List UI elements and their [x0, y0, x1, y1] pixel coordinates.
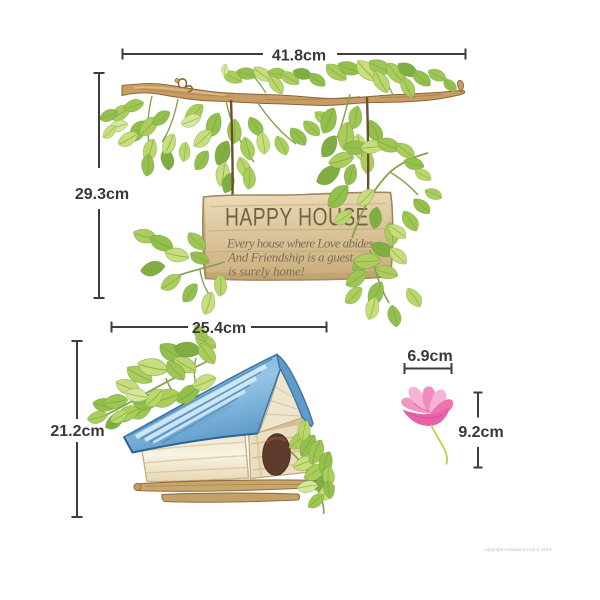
- svg-text:21.2cm: 21.2cm: [50, 423, 104, 440]
- svg-text:9.2cm: 9.2cm: [458, 424, 503, 441]
- svg-text:41.8cm: 41.8cm: [272, 48, 326, 65]
- svg-text:25.4cm: 25.4cm: [192, 320, 246, 337]
- svg-text:29.3cm: 29.3cm: [75, 186, 129, 203]
- svg-text:is surely home!: is surely home!: [228, 264, 305, 279]
- svg-text:copyright Ambiance Live © 2015: copyright Ambiance Live © 2015: [484, 546, 552, 552]
- svg-text:And Friendship is a guest,: And Friendship is a guest,: [227, 250, 356, 265]
- svg-text:Every house where Love abides,: Every house where Love abides,: [226, 236, 376, 251]
- svg-text:6.9cm: 6.9cm: [407, 348, 452, 365]
